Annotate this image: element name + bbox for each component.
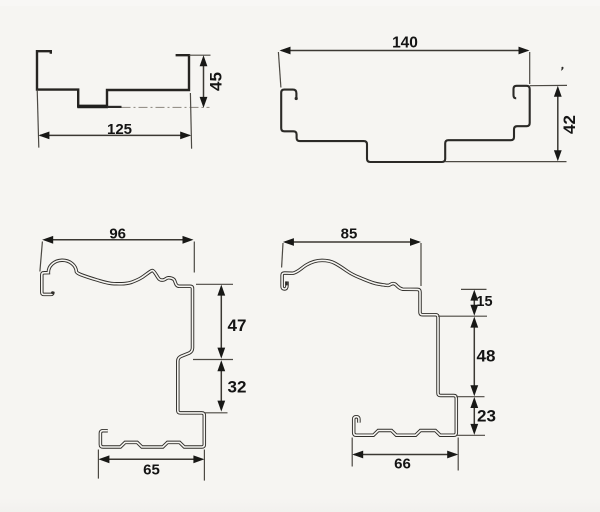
svg-text:66: 66	[394, 455, 411, 472]
svg-text:85: 85	[341, 226, 358, 243]
svg-text:48: 48	[477, 347, 496, 366]
svg-text:15: 15	[476, 294, 492, 310]
svg-text:32: 32	[228, 378, 247, 397]
svg-text:45: 45	[207, 72, 226, 91]
svg-text:125: 125	[107, 121, 132, 138]
svg-text:47: 47	[228, 316, 247, 335]
svg-text:140: 140	[392, 34, 418, 51]
svg-text:65: 65	[143, 461, 160, 478]
svg-text:96: 96	[109, 225, 126, 242]
svg-text:23: 23	[477, 407, 496, 426]
svg-text:42: 42	[560, 115, 579, 134]
